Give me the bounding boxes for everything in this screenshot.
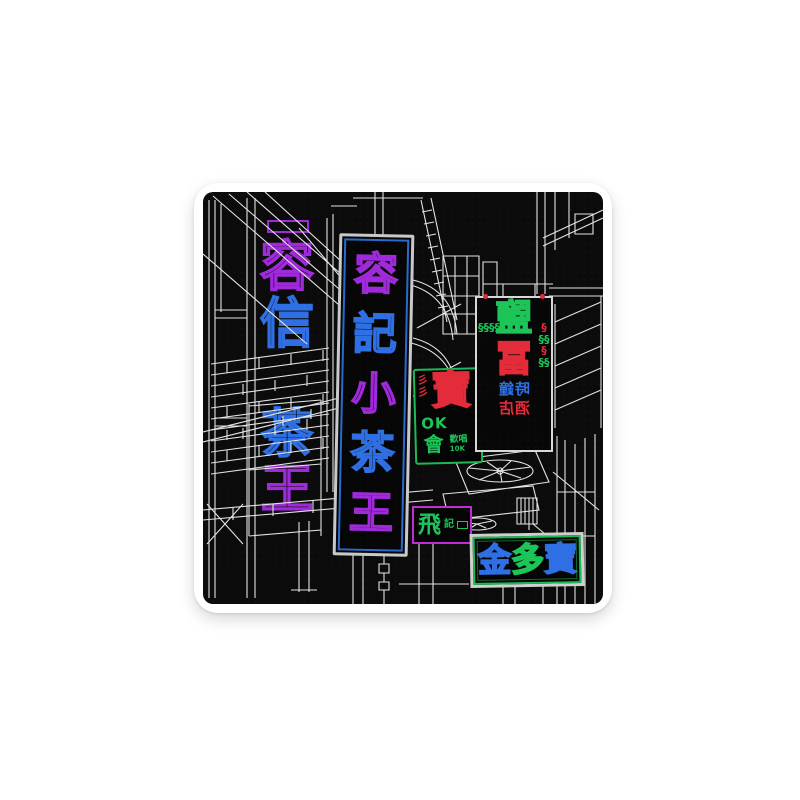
spiral-chain-left: §§§§§	[478, 322, 490, 334]
neon-text-mirrored: 時鐘	[498, 382, 530, 398]
neon-char: 記	[352, 312, 397, 360]
neon-char: 飛	[418, 513, 441, 537]
neon-text-mirrored: 酒店	[498, 401, 530, 417]
red-lamp	[540, 294, 545, 299]
neon-char: 寶	[544, 542, 578, 578]
neon-char: 會	[423, 434, 444, 456]
neon-char: 茶	[261, 408, 313, 463]
bottom-green-sign: 金 多 寶	[473, 535, 582, 585]
exhaust-fan	[467, 460, 533, 482]
red-lamp	[483, 294, 488, 299]
fan-spokes	[469, 461, 531, 482]
side-text-line1: 歡唱	[449, 434, 467, 444]
chain-segment: §	[538, 322, 550, 334]
karaoke-sign: 彡彡 寶 OK 會 歡唱 10K	[413, 367, 483, 465]
neon-box-mark	[457, 521, 468, 529]
neon-char-mirrored: 鹽	[496, 300, 532, 338]
small-purple-sign: 飛 記	[412, 506, 472, 544]
neon-street-sticker: 容 信 茶 王	[194, 183, 612, 613]
hotel-sign-characters: 鹽 冨 時鐘 酒店	[491, 300, 537, 417]
neon-char: 金	[478, 543, 512, 579]
neon-char: 王	[261, 463, 313, 518]
neon-char: 容	[354, 252, 399, 300]
neon-char: 茶	[350, 431, 395, 479]
neon-char-small: 記	[444, 520, 454, 530]
neon-char-mirrored: 冨	[496, 341, 532, 379]
neon-char: 容	[260, 238, 314, 295]
mirrored-hotel-sign: §§§§§ § §§ § §§ 鹽 冨 時鐘 酒店	[475, 296, 553, 452]
partial-neon-stroke	[267, 220, 309, 233]
neon-char: 多	[511, 542, 545, 578]
side-text-line2: 10K	[450, 445, 465, 453]
neon-squiggle: 彡彡	[417, 374, 430, 398]
neon-char: 信	[260, 295, 314, 352]
spiral-chain-right: § §§ § §§	[538, 322, 550, 369]
right-louvers	[555, 296, 601, 428]
left-upper-wall-sign: 容 信	[249, 220, 325, 352]
sticker-artwork: 容 信 茶 王	[203, 192, 603, 604]
neon-char: 小	[351, 371, 396, 419]
neon-char: 王	[349, 490, 394, 538]
main-vertical-sign: 容 記 小 茶 王	[333, 233, 415, 557]
right-upper-structure	[491, 192, 603, 296]
neon-char: 寶	[431, 369, 472, 412]
fan-hub	[497, 468, 503, 474]
ok-text: OK	[421, 416, 448, 433]
main-sign-blue-frame: 容 記 小 茶 王	[338, 238, 410, 551]
left-lower-wall-sign: 茶 王	[251, 408, 323, 518]
small-side-text: 歡唱 10K	[450, 435, 468, 453]
chain-segment: §§	[538, 357, 550, 369]
ladder	[421, 198, 457, 322]
